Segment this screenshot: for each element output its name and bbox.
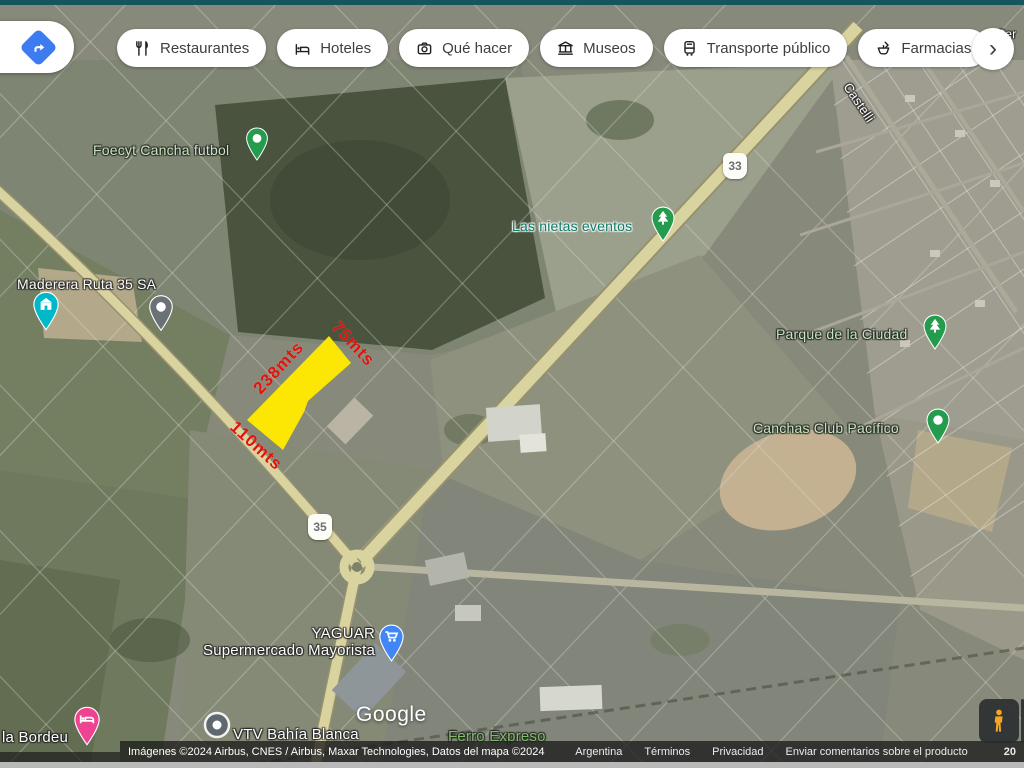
chip-restaurants[interactable]: Restaurantes — [117, 29, 266, 67]
yaguar-line2: Supermercado Mayorista — [190, 642, 375, 659]
chevron-right-icon[interactable]: › — [972, 28, 1014, 70]
chip-things-to-do[interactable]: Qué hacer — [399, 29, 529, 67]
pharmacy-icon — [875, 40, 892, 57]
place-label-bordeu[interactable]: la Bordeu — [2, 729, 68, 746]
tree-pin-parque[interactable] — [922, 314, 948, 350]
place-label-foecyt[interactable]: Foecyt Cancha futbol — [93, 142, 229, 158]
chip-label: Restaurantes — [160, 40, 249, 57]
bed-pin-bordeu[interactable] — [73, 706, 101, 746]
gray-pin-maderera-area[interactable] — [148, 294, 174, 332]
attribution-strip — [0, 752, 120, 762]
place-pin-foecyt[interactable] — [245, 127, 269, 161]
category-chip-bar: Restaurantes Hoteles Qué hacer Museos — [117, 29, 988, 67]
chip-museums[interactable]: Museos — [540, 29, 653, 67]
place-pin-canchas[interactable] — [925, 408, 951, 444]
restaurant-icon — [134, 40, 151, 57]
google-watermark: Google — [356, 703, 427, 727]
search-pill-partial[interactable] — [0, 21, 74, 73]
route-shield-33: 33 — [723, 153, 747, 179]
chip-label: Farmacias — [901, 40, 971, 57]
window-bottom-strip — [0, 762, 1024, 768]
tree-pin-las-nietas[interactable] — [650, 206, 676, 242]
circle-marker-vtv[interactable] — [203, 711, 231, 739]
place-label-canchas[interactable]: Canchas Club Pacífico — [753, 420, 899, 436]
attribution-bar: Imágenes ©2024 Airbus, CNES / Airbus, Ma… — [120, 741, 1024, 762]
transit-icon — [681, 40, 698, 57]
terms-link[interactable]: Términos — [644, 746, 690, 758]
museum-icon — [557, 40, 574, 57]
place-label-parque[interactable]: Parque de la Ciudad — [776, 326, 907, 342]
place-label-yaguar[interactable]: YAGUAR Supermercado Mayorista — [190, 625, 375, 659]
cart-pin-yaguar[interactable] — [378, 624, 405, 662]
camera-icon — [416, 40, 433, 57]
pegman-icon — [991, 709, 1007, 733]
chip-label: Hoteles — [320, 40, 371, 57]
chip-label: Qué hacer — [442, 40, 512, 57]
google-maps-window: Foecyt Cancha futbol Las nietas eventos … — [0, 0, 1024, 768]
hotel-icon — [294, 40, 311, 57]
chip-pharmacies[interactable]: Farmacias — [858, 29, 988, 67]
region-label: Argentina — [575, 746, 622, 758]
route-shield-35: 35 — [308, 514, 332, 540]
route-33-number: 33 — [728, 159, 741, 173]
yaguar-line1: YAGUAR — [190, 625, 375, 642]
feedback-link[interactable]: Enviar comentarios sobre el producto — [786, 746, 968, 758]
place-label-maderera[interactable]: Maderera Ruta 35 SA — [17, 276, 156, 292]
chip-hotels[interactable]: Hoteles — [277, 29, 388, 67]
privacy-link[interactable]: Privacidad — [712, 746, 763, 758]
directions-icon[interactable] — [19, 28, 57, 66]
store-pin-maderera[interactable] — [32, 291, 60, 331]
imagery-attribution: Imágenes ©2024 Airbus, CNES / Airbus, Ma… — [128, 746, 545, 758]
place-label-las-nietas[interactable]: Las nietas eventos — [512, 218, 632, 234]
chip-label: Museos — [583, 40, 636, 57]
chip-label: Transporte público — [707, 40, 831, 57]
scale-label-partial: 20 — [1004, 746, 1016, 758]
pegman-button[interactable] — [979, 699, 1019, 743]
browser-top-strip — [0, 0, 1024, 5]
chip-public-transit[interactable]: Transporte público — [664, 29, 848, 67]
route-35-number: 35 — [313, 520, 326, 534]
